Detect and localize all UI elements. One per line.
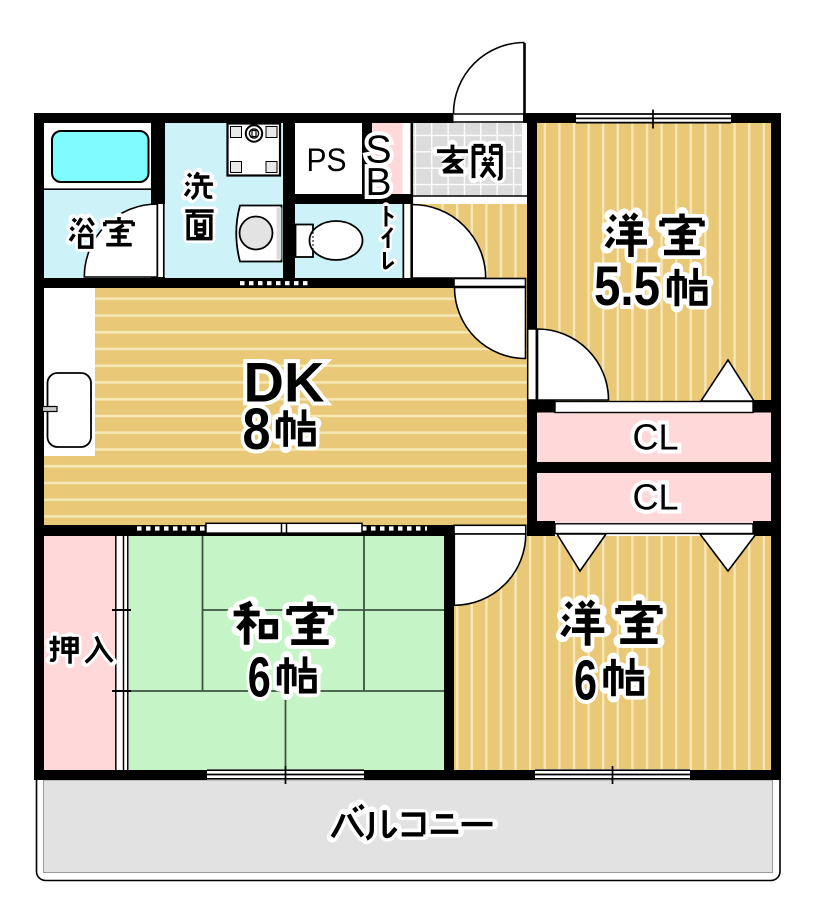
svg-text:CL: CL — [632, 477, 678, 518]
svg-text:B: B — [365, 161, 391, 204]
svg-text:PS: PS — [307, 142, 347, 178]
svg-text:6: 6 — [574, 649, 597, 713]
svg-text:6: 6 — [248, 646, 271, 710]
svg-text:8: 8 — [243, 397, 271, 462]
svg-text:5.5: 5.5 — [594, 254, 660, 317]
svg-text:CL: CL — [632, 417, 678, 458]
